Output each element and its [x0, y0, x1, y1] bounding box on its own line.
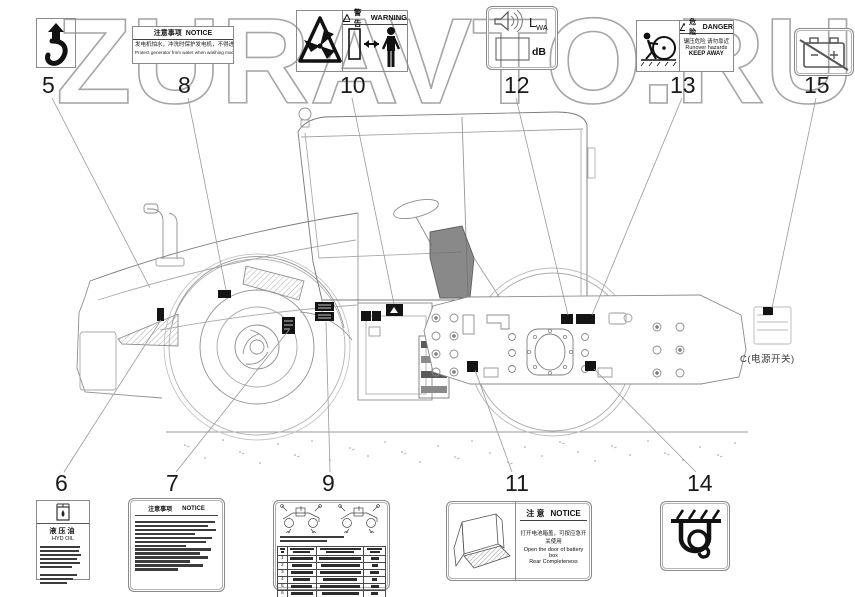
label13-header-en: DANGER — [703, 24, 733, 31]
decal-label-15-battery-disconnect — [794, 28, 854, 76]
decal-label-7-notice: 注意事项 NOTICE — [128, 498, 225, 592]
parts-table: 123456789 — [277, 546, 386, 597]
table-row-number: 4 — [278, 576, 288, 583]
battery-box-sketch — [450, 508, 512, 574]
parts-diagram-page: ZURAVTO.RU — [0, 0, 855, 597]
label11-header-en: NOTICE — [551, 509, 581, 518]
callout-13: 13 — [670, 74, 696, 97]
warning-triangle-icon — [680, 23, 685, 31]
callout-12: 12 — [504, 74, 530, 97]
callout-14: 14 — [687, 472, 713, 495]
db-unit: dB — [532, 46, 546, 58]
speaker-icon — [495, 10, 522, 32]
label7-header-cn: 注意事项 — [148, 504, 172, 513]
table-row: 2 — [278, 562, 386, 569]
decal-label-9-chart: 123456789 — [273, 500, 390, 590]
table-row: 1 — [278, 555, 386, 562]
callout-11: 11 — [505, 472, 529, 495]
callout-10: 10 — [340, 74, 366, 97]
table-row: 6 — [278, 590, 386, 597]
decal-label-13-danger: 危险 DANGER 辗压危险 请勿靠近 Runover hazards KEEP… — [636, 20, 734, 72]
decal-label-10-warning: 警告 WARNING — [296, 10, 408, 72]
label13-line-cn: 辗压危险 请勿靠近 — [680, 34, 733, 45]
power-switch-caption: C(电源开关) — [740, 351, 830, 365]
fan-hazard-triangle-icon — [298, 13, 342, 69]
label11-header-cn: 注 意 — [526, 508, 544, 519]
label8-header-en: NOTICE — [186, 30, 212, 37]
label10-header-en: WARNING — [371, 13, 407, 22]
decal-label-12-noise: L WA dB — [486, 6, 558, 70]
table-row: 4 — [278, 576, 386, 583]
decal-label-5-lifting-point — [36, 18, 76, 68]
oil-can-icon — [53, 503, 73, 521]
callout-5: 5 — [42, 74, 55, 97]
mini-machine-sketches — [275, 503, 388, 533]
runover-pictogram — [638, 24, 678, 68]
label8-header-cn: 注意事项 — [154, 28, 182, 38]
label8-line-en: Protect generator from water when washin… — [133, 49, 233, 56]
callout-15: 15 — [804, 74, 830, 97]
callout-7: 7 — [166, 472, 179, 495]
lifting-hook-icon — [37, 19, 75, 67]
callout-8: 8 — [178, 74, 191, 97]
callout-6: 6 — [55, 472, 68, 495]
decal-label-14-tie-down — [660, 501, 730, 571]
lwa-sub: WA — [536, 23, 548, 32]
label11-line-en2: Rear Completeness — [520, 559, 587, 565]
front-drum — [424, 268, 746, 436]
label6-title-cn: 液压油 — [37, 524, 89, 536]
table-row: 3 — [278, 569, 386, 576]
label6-body-text — [37, 542, 89, 568]
label7-body-text — [129, 516, 224, 571]
battery-disconnect-icon — [797, 31, 851, 73]
table-row: 5 — [278, 583, 386, 590]
label8-line-cn: 发电机怕水，冲洗时保护发电机，不得进水。 — [133, 40, 233, 49]
tie-down-icon — [665, 507, 725, 565]
table-row-number: 3 — [278, 569, 288, 576]
keep-distance-pictogram — [343, 25, 407, 71]
warning-triangle-icon — [343, 14, 350, 22]
table-row-number: 5 — [278, 583, 288, 590]
noise-label-art: L WA dB — [487, 7, 557, 69]
decal-label-8-notice: 注意事项 NOTICE 发电机怕水，冲洗时保护发电机，不得进水。 Protect… — [132, 26, 234, 64]
callout-9: 9 — [322, 472, 335, 495]
label13-line-en2: KEEP AWAY — [680, 51, 733, 57]
table-row-number: 2 — [278, 562, 288, 569]
decal-label-6-hyd-oil: 液压油 HYD OIL — [36, 500, 90, 580]
table-row-number: 6 — [278, 590, 288, 597]
db-value-box — [496, 38, 529, 60]
label13-header-cn: 危险 — [689, 17, 699, 37]
decal-label-11-battery-notice: 注 意 NOTICE 打开电池箱盖，可按应急开关使用 Open the door… — [446, 501, 592, 581]
label11-line-cn: 打开电池箱盖，可按应急开关使用 — [520, 521, 587, 545]
ground-speckles — [184, 439, 736, 464]
label10-header-cn: 警告 — [354, 7, 367, 29]
label6-footer-text — [37, 570, 89, 585]
table-row-number: 1 — [278, 555, 288, 562]
label7-header-en: NOTICE — [182, 506, 205, 512]
label11-line-en1: Open the door of battery box — [520, 545, 587, 559]
